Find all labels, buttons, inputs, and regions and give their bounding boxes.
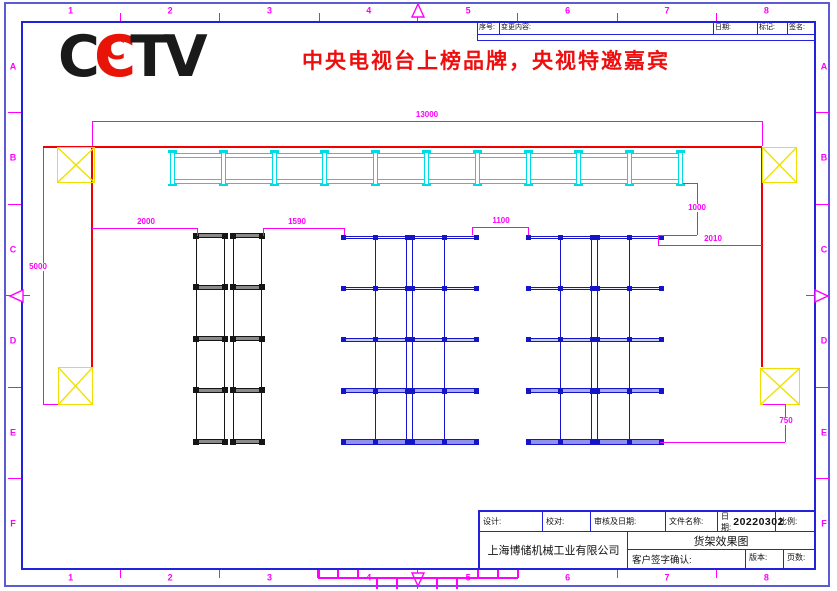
customer-sign-cell: 客户签字确认: — [628, 550, 746, 568]
dimension-line-1590 — [263, 228, 344, 229]
cyan-rack-cap — [371, 150, 380, 153]
black-rack-endplate — [259, 284, 265, 290]
revision-table-divider — [787, 21, 788, 34]
blue-rack-endplate — [558, 388, 564, 394]
blue-rack-endplate — [595, 439, 601, 445]
black-rack-endplate — [222, 233, 228, 239]
zone-tick-top — [517, 13, 518, 21]
pages-cell: 页数: — [784, 550, 816, 568]
column-x-brace — [57, 147, 95, 183]
dimension-label-1000: 1000 — [687, 204, 707, 212]
blue-rack-endplate — [659, 388, 665, 394]
blue-rack-endplate — [373, 235, 379, 241]
dimension-line-1100 — [528, 227, 529, 235]
blue-rack-row — [528, 236, 592, 445]
blue-rack-endplate — [558, 235, 564, 241]
zone-letter-left: E — [10, 428, 16, 437]
tb-review-cell: 审核及日期: — [591, 512, 666, 532]
black-rack-endplate — [193, 439, 199, 445]
zone-number-top: 3 — [267, 7, 272, 16]
blue-rack-row — [412, 236, 476, 445]
center-mark-top-icon — [409, 2, 427, 20]
zone-tick-top — [219, 13, 220, 21]
zone-number-bottom: 3 — [267, 574, 272, 583]
blue-rack-endplate — [595, 235, 601, 241]
cyan-rack-upright — [627, 151, 632, 185]
black-rack-endplate — [259, 233, 265, 239]
blue-rack-row — [343, 236, 407, 445]
black-rack-endplate — [222, 336, 228, 342]
dimension-label-2010: 2010 — [704, 235, 722, 243]
black-rack-endplate — [230, 387, 236, 393]
revision-table-divider — [499, 21, 500, 34]
blue-rack-row — [597, 236, 661, 445]
blue-rack-endplate — [526, 235, 532, 241]
tb-date-cell: 日期: 20220302 — [718, 512, 776, 532]
cyan-rack-cap — [574, 150, 583, 153]
blue-rack-endplate — [410, 286, 416, 292]
dimension-line-5000 — [43, 404, 58, 405]
dimension-line-750 — [763, 404, 785, 405]
black-rack-endplate — [259, 439, 265, 445]
blue-rack-endplate — [410, 235, 416, 241]
blue-rack-endplate — [558, 286, 564, 292]
column-x-brace — [762, 147, 797, 183]
drawing-sheet: 1122334455667788AABBCCDDEEFF CCCTV 中央电视台… — [0, 0, 837, 591]
cyan-rack-upright — [424, 151, 429, 185]
zone-letter-left: C — [10, 245, 17, 254]
blue-rack-endplate — [341, 337, 347, 343]
blue-rack-endplate — [410, 337, 416, 343]
zone-tick-top — [617, 13, 618, 21]
column-x-brace — [760, 368, 800, 405]
black-rack-endplate — [193, 387, 199, 393]
fold-mark-riser — [477, 570, 478, 578]
dimension-line-750 — [660, 442, 785, 443]
building-column — [762, 147, 797, 183]
zone-tick-right — [816, 204, 829, 205]
blue-rack-endplate — [558, 337, 564, 343]
blue-rack-endplate — [595, 286, 601, 292]
cyan-rack-cap — [473, 184, 482, 187]
zone-tick-left — [8, 387, 21, 388]
zone-letter-left: D — [10, 337, 17, 346]
building-column — [57, 147, 95, 183]
dimension-label-1590: 1590 — [288, 218, 306, 226]
cyan-rack-cap — [320, 184, 329, 187]
blue-rack-endplate — [341, 439, 347, 445]
zone-number-top: 2 — [168, 7, 173, 16]
fold-mark-riser — [357, 570, 358, 578]
zone-number-top: 5 — [466, 7, 471, 16]
dimension-line-2000 — [197, 228, 198, 236]
blue-rack-endplate — [442, 439, 448, 445]
dimension-line-1000 — [658, 235, 659, 245]
blue-rack-endplate — [595, 388, 601, 394]
cyan-rack-cap — [422, 184, 431, 187]
zone-letter-right: E — [821, 428, 827, 437]
fold-mark-tick — [456, 578, 457, 589]
zone-number-top: 4 — [366, 7, 371, 16]
revision-col-0: 序号: — [479, 22, 495, 34]
fold-mark-riser — [517, 570, 518, 578]
black-rack-endplate — [193, 336, 199, 342]
blue-rack-endplate — [341, 235, 347, 241]
blue-rack-endplate — [442, 388, 448, 394]
cyan-rack-cap — [168, 150, 177, 153]
zone-number-top: 7 — [664, 7, 669, 16]
dimension-line-1000 — [683, 183, 697, 184]
blue-rack-endplate — [410, 388, 416, 394]
cyan-rack-cap — [219, 150, 228, 153]
zone-tick-bottom — [219, 570, 220, 578]
building-column — [760, 368, 800, 405]
zone-tick-right — [816, 387, 829, 388]
black-rack-endplate — [222, 284, 228, 290]
blue-rack-endplate — [442, 235, 448, 241]
red-line — [43, 146, 762, 148]
logo-letter: C — [58, 26, 94, 88]
tb-scale-cell: 比例: — [776, 512, 814, 532]
drawing-title: 货架效果图 — [628, 532, 814, 550]
cyan-rack-cap — [270, 184, 279, 187]
title-block: 设计: 校对: 审核及日期: 文件名称: 日期: 20220302 比例: 上海… — [478, 510, 816, 570]
cyan-rack-cap — [676, 184, 685, 187]
cyan-rack-row — [170, 151, 683, 185]
cyan-rack-upright — [373, 151, 378, 185]
cyan-rack-upright — [221, 151, 226, 185]
zone-letter-right: D — [821, 337, 828, 346]
revision-col-4: 签名: — [789, 22, 805, 34]
column-x-brace — [58, 367, 93, 405]
fold-mark-line — [318, 577, 518, 578]
dimension-line-5000 — [43, 148, 44, 404]
zone-letter-left: F — [10, 520, 16, 529]
dimension-label-750: 750 — [778, 417, 793, 425]
black-rack-endplate — [259, 387, 265, 393]
company-name: 上海博储机械工业有限公司 — [480, 532, 628, 568]
center-mark-right-icon — [812, 287, 830, 305]
tb-proof-cell: 校对: — [543, 512, 591, 532]
blue-rack-endplate — [474, 337, 480, 343]
dimension-label-2000: 2000 — [137, 218, 155, 226]
black-rack-endplate — [230, 284, 236, 290]
logo-letter: T — [130, 26, 163, 88]
tb-filename-cell: 文件名称: — [666, 512, 718, 532]
zone-number-top: 8 — [764, 7, 769, 16]
blue-rack-endplate — [627, 388, 633, 394]
cyan-rack-cap — [625, 150, 634, 153]
fold-mark-tick — [436, 578, 437, 589]
zone-number-bottom: 7 — [664, 574, 669, 583]
black-rack-endplate — [230, 336, 236, 342]
zone-tick-right — [816, 112, 829, 113]
cyan-rack-upright — [475, 151, 480, 185]
center-mark-left-icon — [8, 287, 26, 305]
zone-tick-left — [8, 204, 21, 205]
cyan-rack-upright — [170, 151, 175, 185]
revision-col-2: 日期: — [715, 22, 731, 34]
headline-text: 中央电视台上榜品牌，央视特邀嘉宾 — [302, 45, 670, 75]
blue-rack-endplate — [474, 439, 480, 445]
fold-mark-riser — [337, 570, 338, 578]
cyan-rack-upright — [678, 151, 683, 185]
zone-letter-right: F — [821, 520, 827, 529]
blue-rack-endplate — [373, 337, 379, 343]
cyan-rack-cap — [219, 184, 228, 187]
blue-rack-endplate — [526, 286, 532, 292]
dimension-line-13000 — [92, 121, 762, 122]
blue-rack-endplate — [558, 439, 564, 445]
revision-table-midline — [477, 34, 816, 35]
blue-rack-endplate — [341, 286, 347, 292]
black-rack-endplate — [259, 336, 265, 342]
version-cell: 版本: — [746, 550, 784, 568]
dimension-line-1000 — [658, 235, 697, 236]
blue-rack-endplate — [474, 235, 480, 241]
zone-tick-bottom — [617, 570, 618, 578]
zone-letter-right: C — [821, 245, 828, 254]
blue-rack-endplate — [627, 439, 633, 445]
cyan-rack-cap — [473, 150, 482, 153]
cyan-rack-cap — [371, 184, 380, 187]
cyan-rack-cap — [524, 184, 533, 187]
black-rack-endplate — [230, 439, 236, 445]
fold-mark-tick — [396, 578, 397, 589]
blue-rack-endplate — [373, 286, 379, 292]
center-mark-bottom-icon — [409, 570, 427, 588]
blue-rack-endplate — [442, 286, 448, 292]
zone-number-top: 1 — [68, 7, 73, 16]
blue-rack-endplate — [659, 286, 665, 292]
zone-letter-right: A — [821, 62, 828, 71]
cyan-rack-cap — [320, 150, 329, 153]
revision-table-divider — [713, 21, 714, 34]
zone-tick-bottom — [120, 570, 121, 578]
dimension-line-1100 — [472, 227, 528, 228]
dimension-line-13000 — [92, 121, 93, 146]
zone-number-bottom: 6 — [565, 574, 570, 583]
black-rack-endplate — [222, 387, 228, 393]
blue-rack-endplate — [526, 337, 532, 343]
cyan-rack-cap — [524, 150, 533, 153]
black-rack-endplate — [193, 284, 199, 290]
zone-tick-right — [816, 478, 829, 479]
zone-tick-left — [8, 112, 21, 113]
cctv-logo: CCCTV — [58, 26, 202, 88]
blue-rack-endplate — [627, 235, 633, 241]
zone-tick-bottom — [716, 570, 717, 578]
zone-number-top: 6 — [565, 7, 570, 16]
fold-mark-tick — [376, 578, 377, 589]
tb-design-cell: 设计: — [480, 512, 543, 532]
fold-mark-riser — [497, 570, 498, 578]
blue-rack-endplate — [373, 439, 379, 445]
fold-mark-riser — [317, 570, 318, 578]
cyan-rack-upright — [322, 151, 327, 185]
zone-letter-right: B — [821, 154, 828, 163]
dimension-line-2000 — [92, 228, 197, 229]
dimension-line-1590 — [344, 228, 345, 235]
blue-rack-endplate — [627, 286, 633, 292]
zone-number-bottom: 8 — [764, 574, 769, 583]
cyan-rack-cap — [574, 184, 583, 187]
blue-rack-endplate — [341, 388, 347, 394]
cyan-rack-upright — [526, 151, 531, 185]
blue-rack-endplate — [442, 337, 448, 343]
revision-col-1: 变更内容: — [501, 22, 531, 34]
blue-rack-endplate — [526, 388, 532, 394]
tb-scale-label: 比例: — [779, 516, 797, 527]
dimension-line-1590 — [263, 228, 264, 236]
dimension-label-1100: 1100 — [492, 217, 509, 225]
tb-filename-label: 文件名称: — [669, 516, 703, 527]
cyan-rack-cap — [676, 150, 685, 153]
zone-letter-left: A — [10, 62, 17, 71]
zone-tick-top — [120, 13, 121, 21]
revision-col-3: 标记: — [759, 22, 775, 34]
blue-rack-endplate — [474, 388, 480, 394]
logo-letter: V — [163, 26, 201, 88]
zone-letter-left: B — [10, 154, 17, 163]
zone-number-bottom: 2 — [168, 574, 173, 583]
tb-design-label: 设计: — [483, 516, 501, 527]
zone-number-bottom: 1 — [68, 574, 73, 583]
cyan-rack-cap — [422, 150, 431, 153]
cyan-rack-upright — [272, 151, 277, 185]
tb-review-label: 审核及日期: — [594, 516, 636, 527]
dimension-line-13000 — [762, 121, 763, 146]
tb-proof-label: 校对: — [546, 516, 564, 527]
cyan-rack-cap — [270, 150, 279, 153]
cyan-rack-cap — [168, 184, 177, 187]
black-rack-row — [195, 233, 225, 444]
blue-rack-endplate — [659, 235, 665, 241]
black-rack-row — [232, 233, 262, 444]
blue-rack-endplate — [595, 337, 601, 343]
cyan-rack-upright — [576, 151, 581, 185]
black-rack-endplate — [222, 439, 228, 445]
cyan-rack-cap — [625, 184, 634, 187]
zone-tick-left — [8, 478, 21, 479]
blue-rack-endplate — [627, 337, 633, 343]
logo-inner-c: C — [104, 34, 126, 64]
blue-rack-endplate — [373, 388, 379, 394]
dimension-label-5000: 5000 — [28, 263, 48, 271]
revision-table-divider — [757, 21, 758, 34]
dimension-label-13000: 13000 — [416, 111, 438, 119]
black-rack-endplate — [193, 233, 199, 239]
blue-rack-endplate — [474, 286, 480, 292]
blue-rack-endplate — [526, 439, 532, 445]
building-column — [58, 367, 93, 405]
black-rack-endplate — [230, 233, 236, 239]
zone-tick-top — [716, 13, 717, 21]
dimension-line-1100 — [472, 227, 473, 235]
dimension-line-2010 — [658, 245, 762, 246]
tb-date-label: 日期: — [721, 511, 731, 533]
logo-letter: CC — [94, 26, 130, 88]
blue-rack-endplate — [659, 337, 665, 343]
zone-tick-top — [319, 13, 320, 21]
blue-rack-endplate — [410, 439, 416, 445]
